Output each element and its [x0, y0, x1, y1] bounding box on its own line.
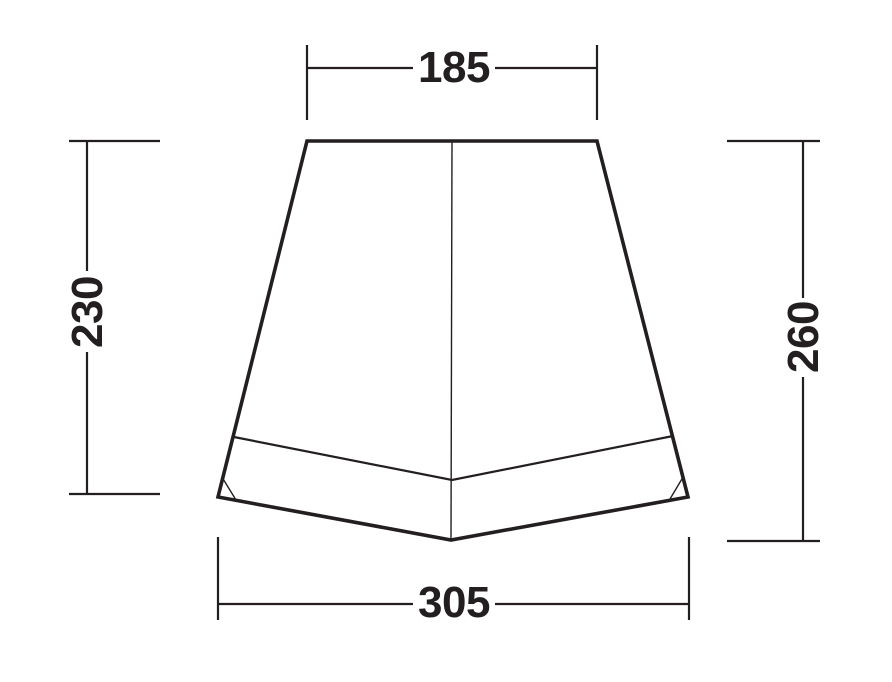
- top-width-value: 185: [418, 43, 490, 92]
- dimension-drawing-svg: 185 230 260 305: [0, 0, 892, 682]
- right-height-value: 260: [779, 301, 828, 373]
- tent-body: [218, 141, 688, 540]
- left-height-value: 230: [63, 276, 112, 348]
- skirt-band-line: [234, 436, 673, 480]
- corner-notch-right: [670, 478, 683, 499]
- line-work: [69, 45, 820, 620]
- bottom-width-value: 305: [418, 578, 490, 627]
- diagram-canvas: 185 230 260 305: [0, 0, 892, 682]
